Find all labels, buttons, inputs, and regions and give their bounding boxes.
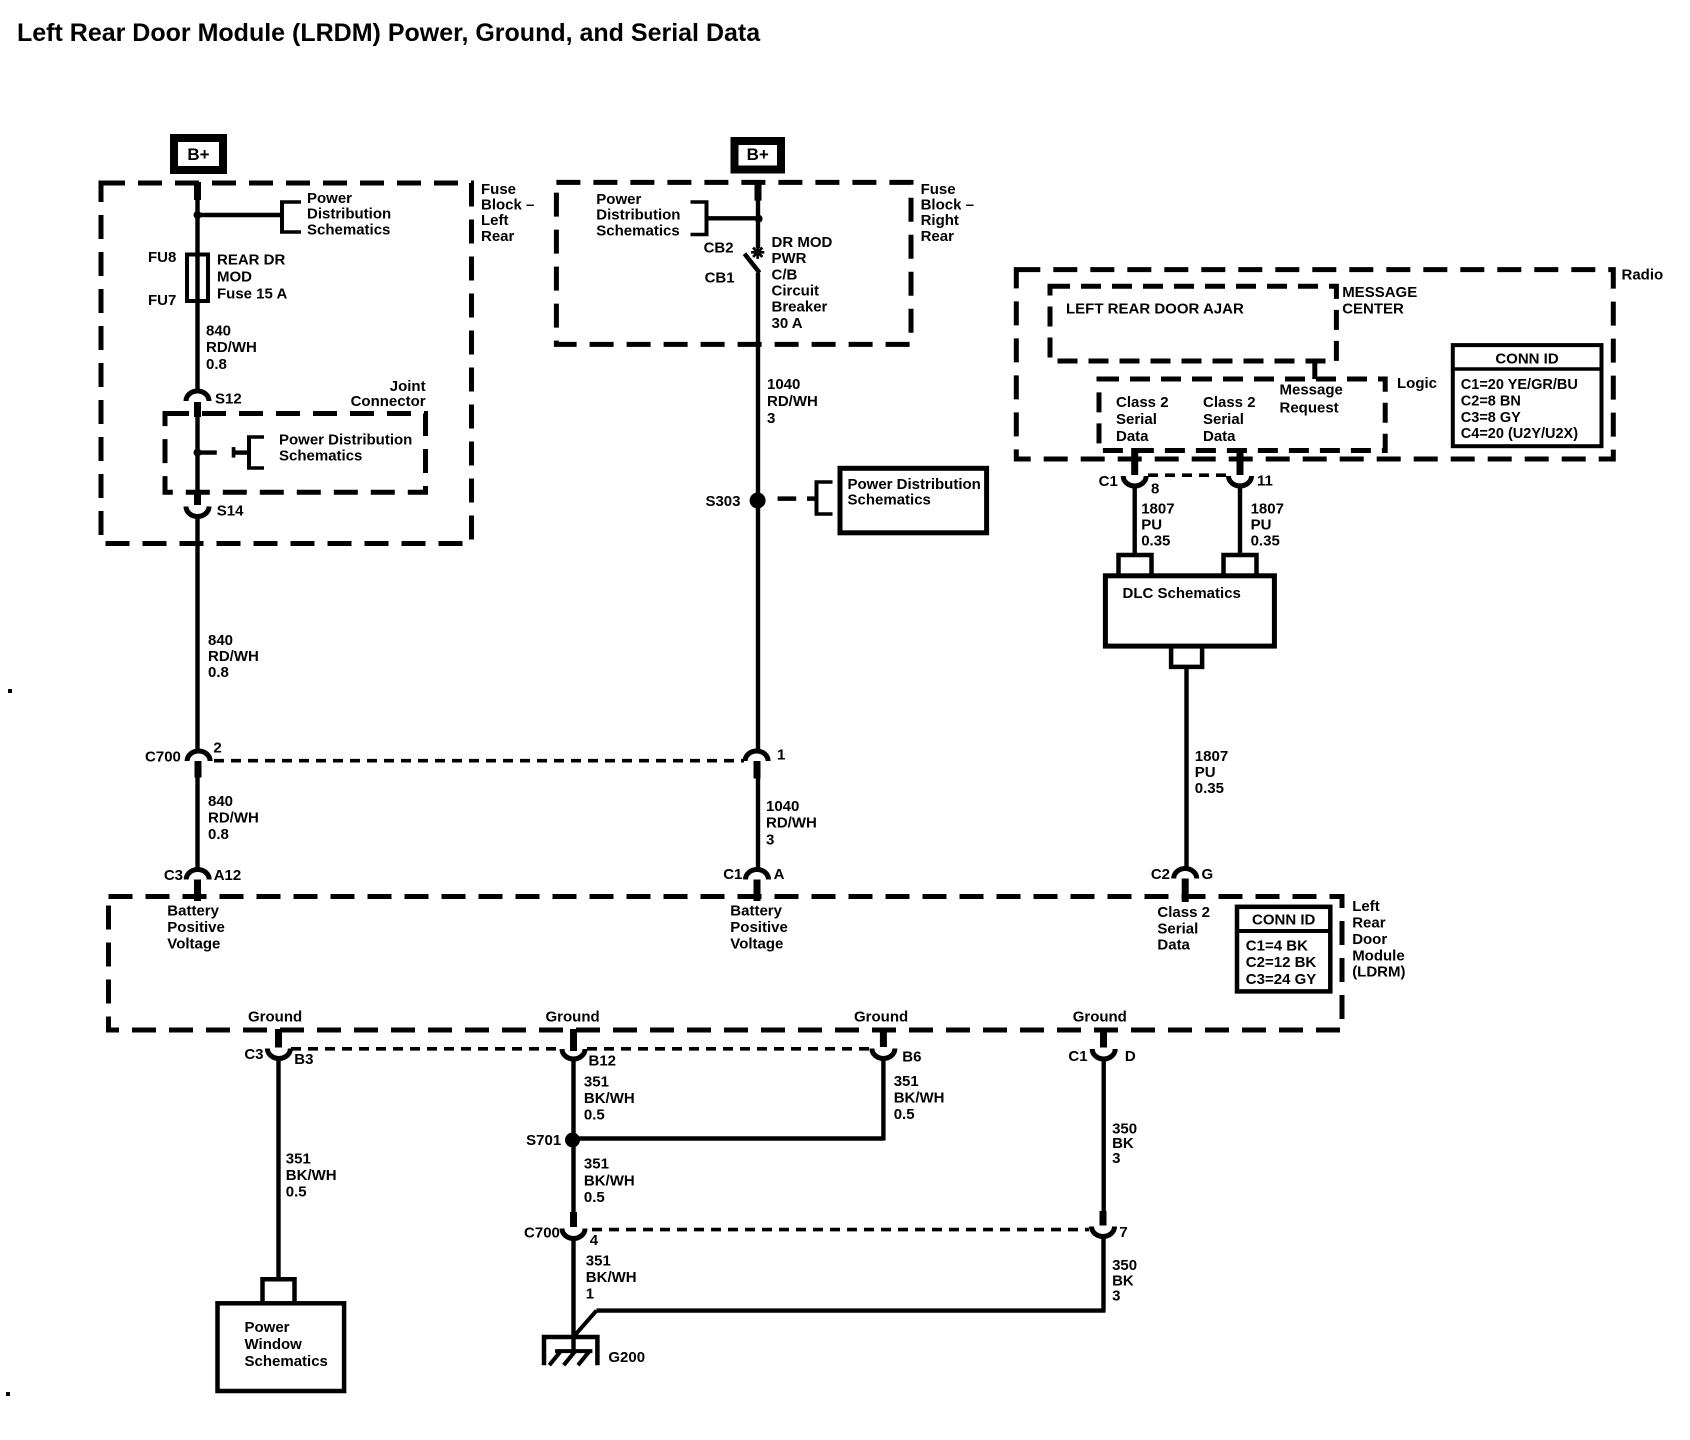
- svg-text:Fuse 15 A: Fuse 15 A: [217, 286, 287, 303]
- svg-text:351: 351: [584, 1073, 609, 1090]
- svg-text:A12: A12: [214, 867, 242, 884]
- svg-text:MOD: MOD: [217, 269, 252, 286]
- svg-text:4: 4: [590, 1232, 599, 1249]
- svg-text:0.35: 0.35: [1251, 533, 1280, 550]
- svg-text:Serial: Serial: [1116, 411, 1157, 428]
- svg-text:RD/WH: RD/WH: [766, 815, 817, 832]
- svg-text:1807: 1807: [1251, 501, 1284, 518]
- svg-text:Class 2: Class 2: [1157, 904, 1210, 921]
- svg-text:FU8: FU8: [148, 249, 176, 266]
- svg-text:S303: S303: [705, 493, 740, 510]
- svg-text:30 A: 30 A: [772, 315, 803, 332]
- svg-text:Ground: Ground: [248, 1008, 302, 1025]
- svg-text:Class 2: Class 2: [1203, 394, 1256, 411]
- svg-text:C1: C1: [723, 866, 742, 883]
- svg-text:C3=24 GY: C3=24 GY: [1246, 971, 1316, 988]
- svg-text:Window: Window: [245, 1336, 303, 1353]
- svg-text:C2: C2: [1151, 866, 1170, 883]
- svg-text:A: A: [774, 866, 785, 883]
- svg-text:C2=12 BK: C2=12 BK: [1246, 954, 1317, 971]
- svg-text:RD/WH: RD/WH: [208, 810, 259, 827]
- svg-text:Left Rear Door Module (LRDM) P: Left Rear Door Module (LRDM) Power, Grou…: [17, 19, 761, 47]
- svg-text:Battery: Battery: [730, 902, 782, 919]
- svg-text:840: 840: [206, 322, 231, 339]
- svg-text:C/B: C/B: [772, 266, 798, 283]
- svg-text:1: 1: [777, 747, 785, 764]
- svg-text:1807: 1807: [1195, 748, 1228, 765]
- svg-text:Block –: Block –: [921, 197, 974, 214]
- svg-text:C1=4 BK: C1=4 BK: [1246, 938, 1308, 955]
- svg-text:Schematics: Schematics: [596, 222, 679, 239]
- svg-text:3: 3: [766, 831, 774, 848]
- svg-text:Data: Data: [1203, 428, 1236, 445]
- svg-text:Data: Data: [1116, 428, 1149, 445]
- svg-text:0.8: 0.8: [206, 356, 227, 373]
- svg-text:B+: B+: [187, 145, 209, 164]
- svg-text:1807: 1807: [1141, 501, 1174, 518]
- svg-text:BK/WH: BK/WH: [584, 1172, 635, 1189]
- svg-text:Circuit: Circuit: [772, 283, 820, 300]
- svg-text:Positive: Positive: [167, 919, 225, 936]
- svg-text:BK/WH: BK/WH: [894, 1090, 945, 1107]
- svg-text:Distribution: Distribution: [307, 206, 391, 223]
- svg-text:PU: PU: [1251, 517, 1272, 534]
- svg-text:Ground: Ground: [546, 1008, 600, 1025]
- svg-text:1: 1: [586, 1286, 594, 1303]
- svg-text:(LDRM): (LDRM): [1352, 964, 1405, 981]
- svg-text:REAR DR: REAR DR: [217, 252, 286, 269]
- svg-text:0.5: 0.5: [584, 1189, 605, 1206]
- svg-text:C700: C700: [524, 1224, 560, 1241]
- svg-text:7: 7: [1119, 1224, 1127, 1241]
- svg-text:Rear: Rear: [481, 228, 515, 245]
- svg-text:PU: PU: [1141, 517, 1162, 534]
- svg-text:Message: Message: [1280, 382, 1343, 399]
- svg-text:0.8: 0.8: [208, 826, 229, 843]
- svg-text:Left: Left: [481, 212, 509, 229]
- svg-text:B3: B3: [294, 1051, 313, 1068]
- svg-text:DLC Schematics: DLC Schematics: [1123, 585, 1241, 602]
- svg-text:Power: Power: [596, 191, 641, 208]
- svg-text:Door: Door: [1352, 931, 1387, 948]
- svg-text:C1: C1: [1068, 1048, 1087, 1065]
- svg-text:2: 2: [213, 740, 221, 757]
- svg-text:Voltage: Voltage: [730, 936, 783, 953]
- svg-text:D: D: [1125, 1048, 1136, 1065]
- svg-text:Schematics: Schematics: [245, 1353, 328, 1370]
- svg-text:Fuse: Fuse: [481, 181, 516, 198]
- svg-text:CENTER: CENTER: [1342, 300, 1404, 317]
- svg-text:CB1: CB1: [705, 269, 735, 286]
- svg-text:PU: PU: [1195, 764, 1216, 781]
- svg-text:Ground: Ground: [854, 1008, 908, 1025]
- svg-text:CB2: CB2: [704, 239, 734, 256]
- svg-text:3: 3: [1112, 1150, 1120, 1167]
- svg-text:LEFT REAR DOOR AJAR: LEFT REAR DOOR AJAR: [1066, 301, 1244, 318]
- svg-text:1040: 1040: [767, 376, 800, 393]
- svg-text:S14: S14: [217, 502, 244, 519]
- svg-text:Class 2: Class 2: [1116, 394, 1169, 411]
- svg-text:Fuse: Fuse: [921, 181, 956, 198]
- svg-text:Battery: Battery: [167, 902, 219, 919]
- svg-text:C2=8 BN: C2=8 BN: [1461, 394, 1521, 410]
- svg-text:0.8: 0.8: [208, 664, 229, 681]
- svg-text:G: G: [1202, 866, 1214, 883]
- svg-text:Request: Request: [1280, 400, 1339, 417]
- svg-text:Ground: Ground: [1073, 1008, 1127, 1025]
- svg-text:DR MOD: DR MOD: [772, 234, 833, 251]
- svg-text:C700: C700: [145, 749, 181, 766]
- svg-text:S701: S701: [526, 1132, 561, 1149]
- svg-text:PWR: PWR: [772, 250, 807, 267]
- svg-text:S12: S12: [215, 391, 242, 408]
- svg-text:0.5: 0.5: [584, 1107, 605, 1124]
- svg-text:BK/WH: BK/WH: [586, 1269, 637, 1286]
- svg-text:Power Distribution: Power Distribution: [848, 476, 981, 493]
- svg-text:0.35: 0.35: [1195, 780, 1224, 797]
- svg-text:C3: C3: [244, 1046, 263, 1063]
- svg-text:351: 351: [584, 1155, 609, 1172]
- svg-text:840: 840: [208, 632, 233, 649]
- svg-text:11: 11: [1257, 473, 1273, 490]
- svg-text:Right: Right: [921, 212, 959, 229]
- svg-text:C3: C3: [164, 867, 183, 884]
- svg-text:Breaker: Breaker: [772, 299, 828, 316]
- svg-text:351: 351: [286, 1151, 311, 1168]
- svg-text:B12: B12: [589, 1053, 617, 1070]
- svg-text:Power: Power: [307, 190, 352, 207]
- svg-text:Rear: Rear: [921, 228, 955, 245]
- svg-text:Left: Left: [1352, 898, 1380, 915]
- svg-text:BK/WH: BK/WH: [584, 1090, 635, 1107]
- svg-text:B+: B+: [747, 145, 769, 164]
- svg-text:Module: Module: [1352, 947, 1405, 964]
- svg-text:RD/WH: RD/WH: [767, 393, 818, 410]
- svg-text:Data: Data: [1157, 937, 1190, 954]
- svg-text:Schematics: Schematics: [279, 447, 362, 464]
- svg-text:FU7: FU7: [148, 292, 176, 309]
- svg-text:Power: Power: [245, 1319, 290, 1336]
- svg-text:3: 3: [767, 410, 775, 427]
- svg-text:Voltage: Voltage: [167, 936, 220, 953]
- svg-text:Block –: Block –: [481, 197, 534, 214]
- svg-text:CONN ID: CONN ID: [1252, 911, 1316, 928]
- svg-text:MESSAGE: MESSAGE: [1342, 284, 1417, 301]
- svg-text:Power Distribution: Power Distribution: [279, 432, 412, 449]
- svg-text:840: 840: [208, 793, 233, 810]
- svg-text:Schematics: Schematics: [307, 221, 390, 238]
- svg-text:Radio: Radio: [1622, 266, 1664, 283]
- svg-text:0.35: 0.35: [1141, 533, 1170, 550]
- svg-text:Logic: Logic: [1397, 375, 1437, 392]
- svg-text:Distribution: Distribution: [596, 207, 680, 224]
- svg-text:C4=20 (U2Y/U2X): C4=20 (U2Y/U2X): [1461, 426, 1578, 442]
- svg-text:Connector: Connector: [351, 393, 426, 410]
- svg-text:Positive: Positive: [730, 919, 788, 936]
- svg-text:Serial: Serial: [1203, 411, 1244, 428]
- svg-text:351: 351: [894, 1073, 919, 1090]
- svg-text:Serial: Serial: [1157, 920, 1198, 937]
- svg-text:3: 3: [1112, 1287, 1120, 1304]
- svg-text:8: 8: [1151, 480, 1159, 497]
- svg-text:Rear: Rear: [1352, 915, 1386, 932]
- svg-text:C3=8 GY: C3=8 GY: [1461, 410, 1521, 426]
- svg-text:RD/WH: RD/WH: [206, 339, 257, 356]
- svg-text:0.5: 0.5: [894, 1106, 915, 1123]
- svg-text:RD/WH: RD/WH: [208, 648, 259, 665]
- svg-text:0.5: 0.5: [286, 1184, 307, 1201]
- svg-text:C1=20 YE/GR/BU: C1=20 YE/GR/BU: [1461, 377, 1578, 393]
- svg-text:G200: G200: [608, 1349, 645, 1366]
- svg-text:351: 351: [586, 1252, 611, 1269]
- svg-text:C1: C1: [1099, 473, 1118, 490]
- svg-text:Schematics: Schematics: [848, 492, 931, 509]
- svg-text:CONN ID: CONN ID: [1495, 351, 1559, 368]
- svg-text:1040: 1040: [766, 798, 799, 815]
- svg-text:B6: B6: [902, 1049, 921, 1066]
- svg-text:BK/WH: BK/WH: [286, 1167, 337, 1184]
